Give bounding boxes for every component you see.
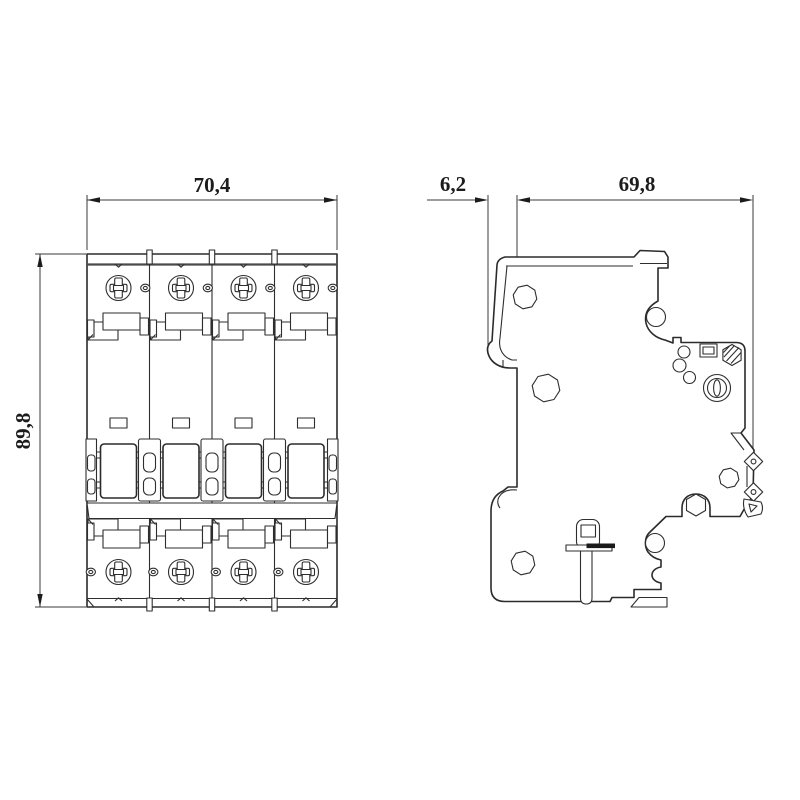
dimension-body-depth: 69,8 bbox=[517, 172, 753, 203]
bottom-foot-plate bbox=[631, 598, 667, 608]
arrow-right-icon bbox=[740, 197, 753, 202]
adjustment-screw bbox=[704, 375, 731, 402]
technical-drawing-page: 70,4 89,8 bbox=[0, 0, 800, 800]
dimension-label-clip-depth: 6,2 bbox=[440, 172, 466, 196]
side-view: 6,2 69,8 bbox=[427, 172, 763, 607]
terminal-screw-hatched bbox=[723, 345, 741, 366]
dimension-front-height: 89,8 bbox=[11, 254, 86, 607]
arrow-right-icon bbox=[475, 197, 488, 202]
slider-slot bbox=[581, 551, 593, 604]
dimension-label-front-width: 70,4 bbox=[194, 173, 231, 197]
dimension-label-body-depth: 69,8 bbox=[619, 172, 656, 196]
dimension-label-front-height: 89,8 bbox=[11, 413, 35, 450]
handle-base-bar bbox=[87, 503, 337, 519]
arrow-left-icon bbox=[87, 197, 100, 202]
handle-tie-block bbox=[264, 439, 286, 501]
arrow-right-icon bbox=[324, 197, 337, 202]
clip-latch bbox=[744, 499, 763, 517]
handle-tie-block bbox=[201, 439, 223, 501]
arrow-down-icon bbox=[37, 594, 42, 607]
breaker-dimension-drawing: 70,4 89,8 bbox=[0, 0, 800, 800]
front-view: 70,4 89,8 bbox=[11, 173, 338, 611]
slider-pull-tab bbox=[587, 544, 616, 549]
arrow-left-icon bbox=[517, 197, 530, 202]
dimension-front-width: 70,4 bbox=[87, 173, 337, 250]
handle-tie-block bbox=[139, 439, 161, 501]
arrow-up-icon bbox=[37, 254, 42, 267]
